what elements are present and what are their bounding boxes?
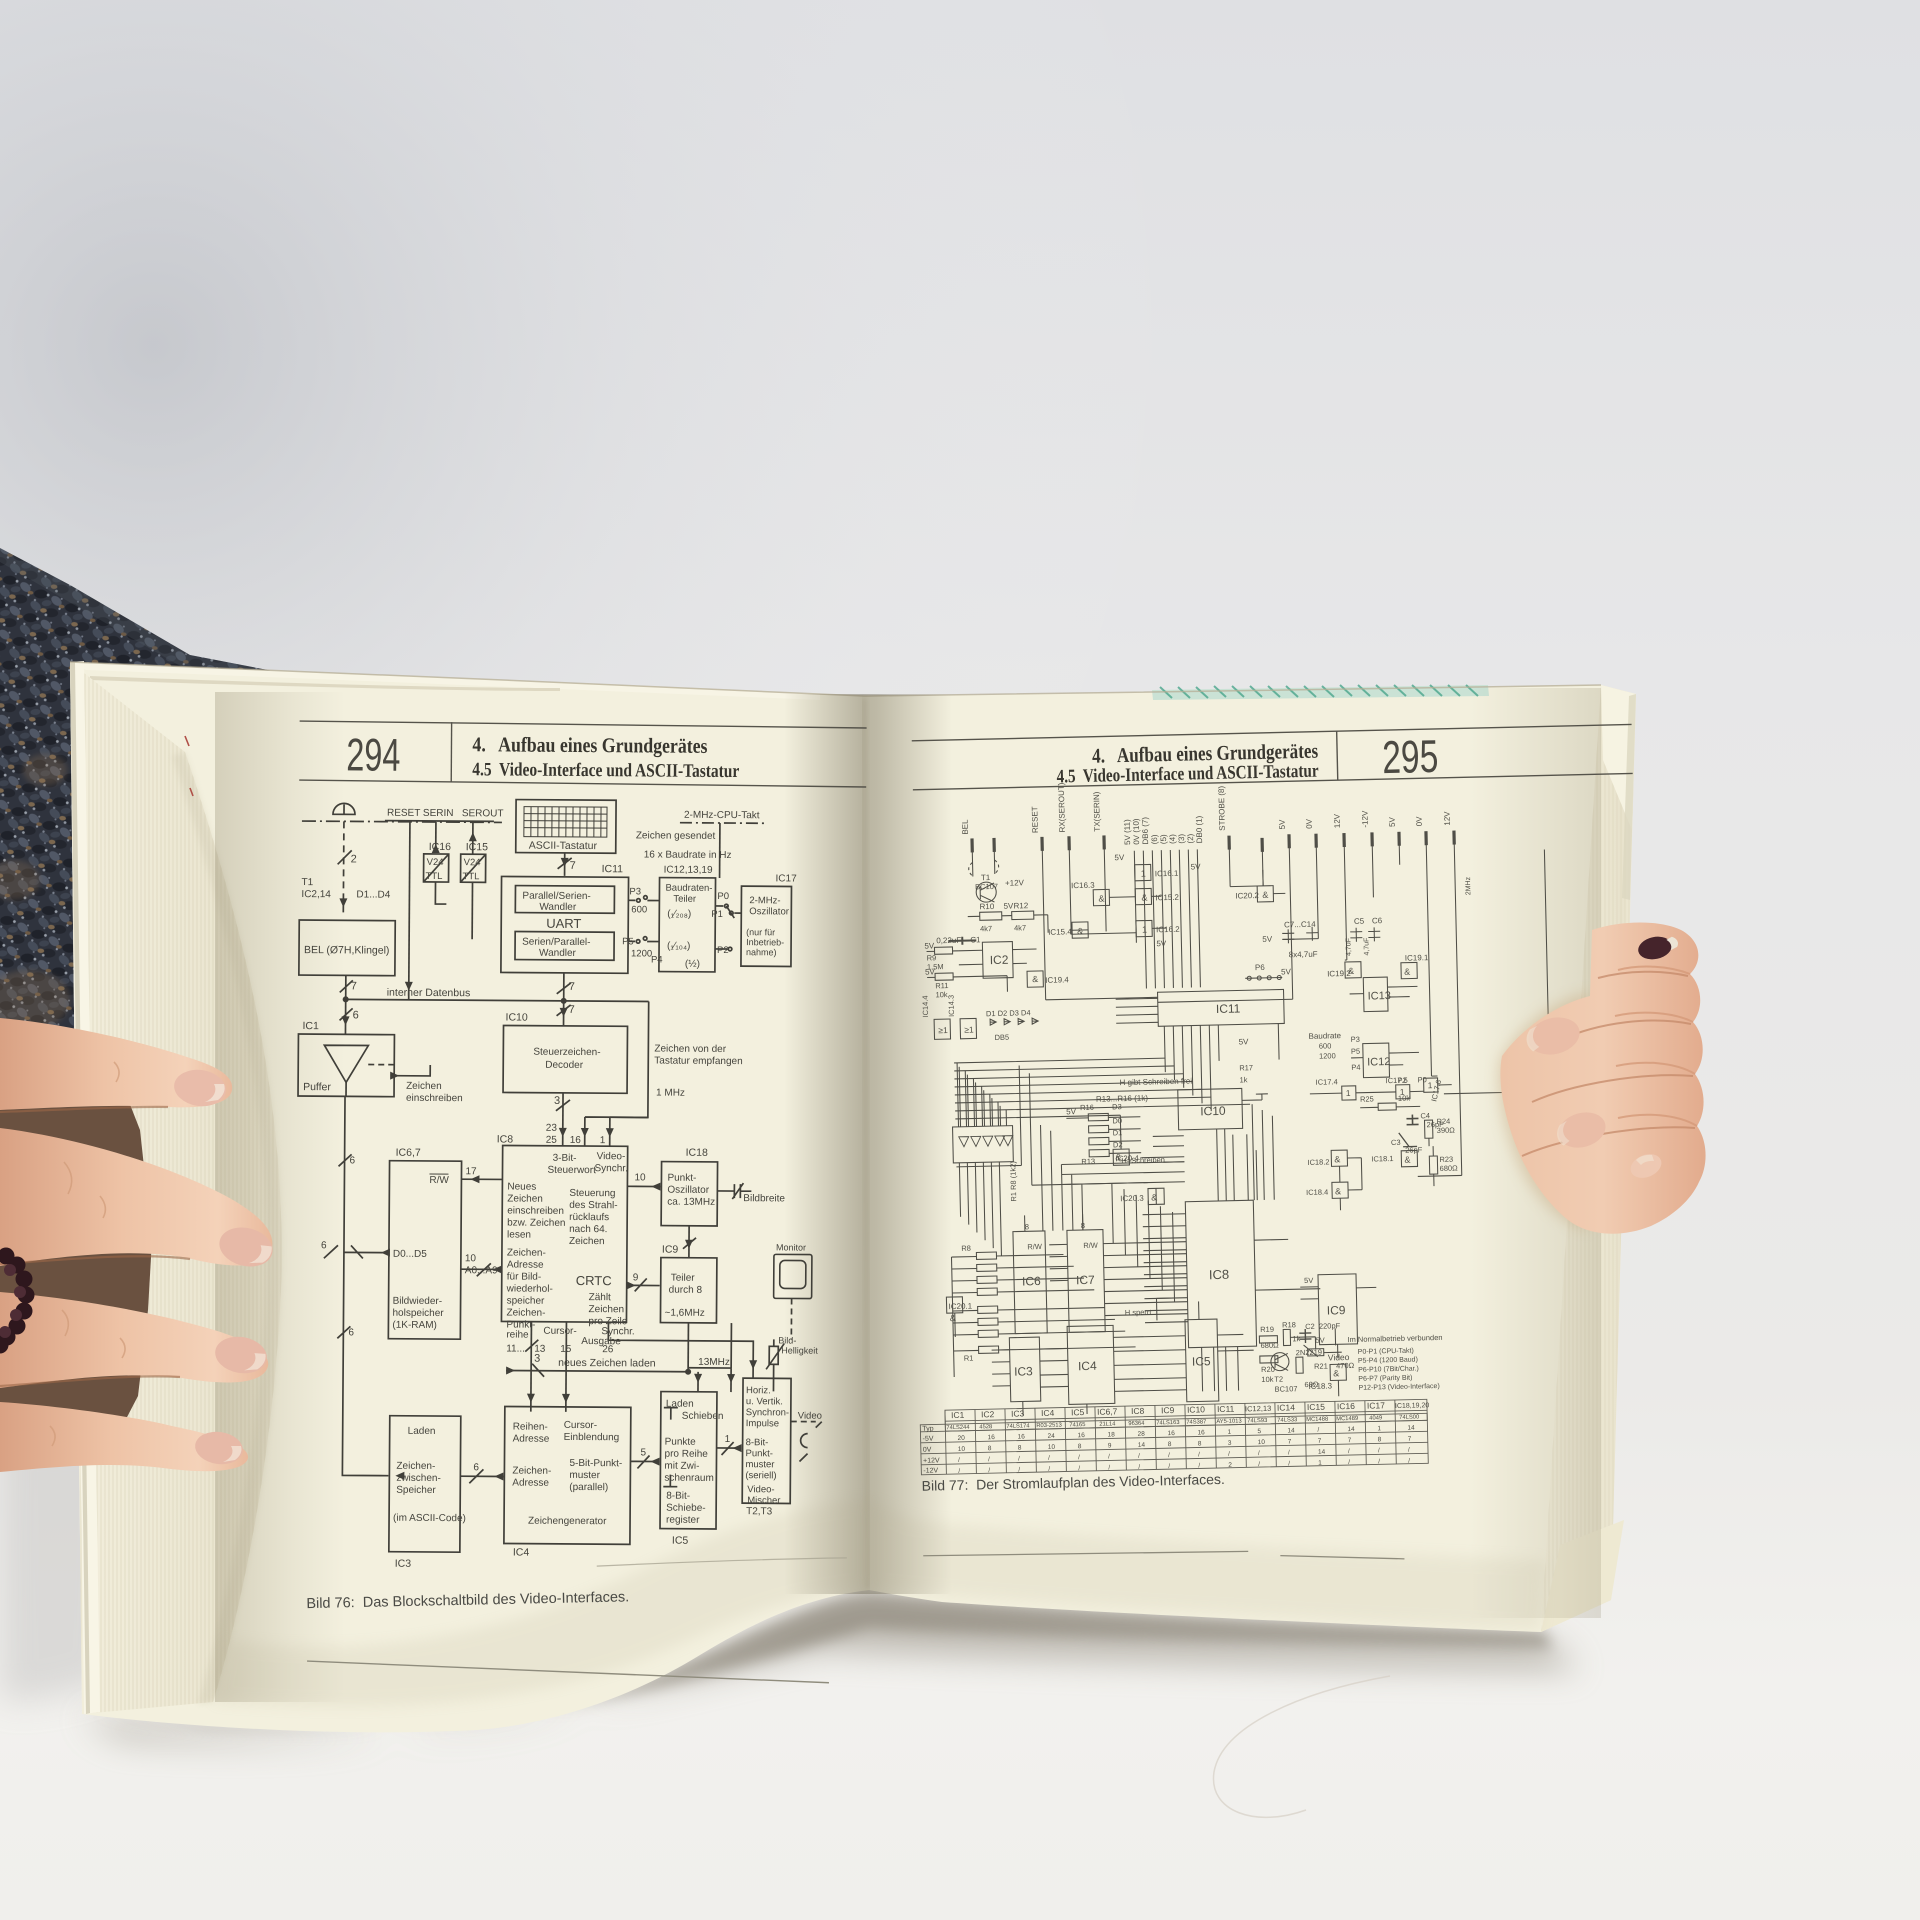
svg-text:Video: Video [798, 1411, 822, 1422]
svg-text:24: 24 [1047, 1433, 1055, 1440]
svg-text:Zählt: Zählt [589, 1292, 612, 1303]
svg-text:1: 1 [600, 1135, 606, 1146]
svg-text:TX(SERIN): TX(SERIN) [1092, 791, 1102, 832]
svg-text:IC10: IC10 [1200, 1104, 1226, 1119]
svg-text:IC5: IC5 [1071, 1407, 1085, 1417]
svg-text:(₁⁄₁₀₄): (₁⁄₁₀₄) [667, 941, 690, 952]
svg-text:/: / [1198, 1462, 1200, 1469]
svg-text:IC11: IC11 [1216, 1001, 1241, 1016]
svg-text:Decoder: Decoder [545, 1060, 584, 1071]
svg-text:74LS00: 74LS00 [1399, 1414, 1419, 1420]
svg-text:D1...D4: D1...D4 [356, 889, 390, 900]
svg-text:74S387: 74S387 [1186, 1419, 1206, 1425]
svg-text:5V: 5V [1239, 1037, 1250, 1046]
svg-text:IC12,13,19: IC12,13,19 [664, 865, 713, 876]
svg-text:C4: C4 [1420, 1111, 1430, 1120]
svg-text:/: / [1168, 1452, 1170, 1459]
svg-text:IC15.4: IC15.4 [1048, 927, 1072, 937]
svg-text:5V: 5V [1156, 939, 1167, 948]
svg-text:0,22uF: 0,22uF [936, 936, 961, 946]
svg-text:R8: R8 [961, 1244, 971, 1253]
svg-text:/: / [988, 1456, 990, 1463]
svg-text:/: / [1378, 1447, 1380, 1454]
svg-text:IC12,13: IC12,13 [1245, 1404, 1271, 1414]
svg-text:Puffer: Puffer [303, 1081, 331, 1093]
svg-text:R03-2513: R03-2513 [1036, 1423, 1062, 1430]
svg-text:Adresse: Adresse [507, 1259, 544, 1270]
svg-text:0V: 0V [1305, 818, 1314, 829]
svg-text:DB6 (7): DB6 (7) [1141, 817, 1151, 845]
svg-text:10k: 10k [1398, 1094, 1411, 1103]
svg-text:/: / [1378, 1458, 1380, 1465]
svg-text:Video-: Video- [597, 1151, 626, 1162]
svg-text:muster: muster [569, 1470, 600, 1481]
svg-text:96364: 96364 [1128, 1421, 1145, 1427]
svg-text:V24: V24 [427, 857, 444, 868]
svg-text:P5: P5 [622, 936, 634, 947]
svg-text:(1K-RAM): (1K-RAM) [392, 1320, 437, 1331]
svg-text:74LS174: 74LS174 [1006, 1423, 1030, 1430]
svg-text:D3: D3 [1112, 1102, 1122, 1111]
svg-text:Laden: Laden [408, 1426, 436, 1437]
svg-text:~1,6MHz: ~1,6MHz [664, 1308, 704, 1319]
svg-text:7: 7 [1318, 1438, 1322, 1445]
svg-text:P2: P2 [717, 945, 729, 956]
svg-text:7: 7 [1348, 1437, 1352, 1444]
svg-text:4049: 4049 [1369, 1415, 1382, 1421]
svg-text:D0: D0 [1112, 1116, 1122, 1125]
svg-text:Zeichengenerator: Zeichengenerator [528, 1516, 607, 1528]
svg-text:&: & [1032, 974, 1038, 984]
svg-text:8-Bit-: 8-Bit- [666, 1491, 690, 1502]
svg-text:R25: R25 [1360, 1094, 1374, 1103]
svg-text:≥1: ≥1 [964, 1024, 974, 1034]
svg-text:7: 7 [1288, 1438, 1292, 1445]
svg-text:T1: T1 [981, 873, 991, 882]
svg-text:/: / [1018, 1456, 1020, 1463]
svg-text:durch 8: durch 8 [669, 1285, 703, 1296]
svg-text:H gibt Schreiben frei: H gibt Schreiben frei [1119, 1077, 1192, 1088]
svg-text:IC20.1: IC20.1 [949, 1302, 973, 1312]
svg-text:P0: P0 [717, 891, 729, 902]
svg-text:IC14: IC14 [1277, 1402, 1295, 1412]
svg-text:IC3: IC3 [1014, 1364, 1033, 1378]
svg-text:P6: P6 [1255, 963, 1266, 972]
svg-text:T2,T3: T2,T3 [746, 1506, 773, 1517]
svg-text:pro Reihe: pro Reihe [664, 1449, 708, 1460]
svg-text:IC17.5: IC17.5 [1385, 1076, 1407, 1085]
svg-text:/: / [958, 1457, 960, 1464]
svg-text:Zeichen-: Zeichen- [506, 1307, 545, 1318]
svg-text:IC1: IC1 [951, 1410, 965, 1420]
svg-text:register: register [666, 1515, 700, 1526]
svg-text:R17: R17 [1239, 1063, 1253, 1072]
svg-text:IC17.4: IC17.4 [1316, 1077, 1338, 1086]
svg-text:Tastatur empfangen: Tastatur empfangen [654, 1056, 742, 1068]
svg-text:H sperrt: H sperrt [1125, 1307, 1153, 1317]
svg-text:für Bild-: für Bild- [507, 1271, 542, 1282]
svg-text:R/W: R/W [429, 1175, 449, 1186]
svg-text:4.5 Video-Interface und ASCII: 4.5 Video-Interface und ASCII-Tastatur [472, 759, 740, 782]
svg-text:5V: 5V [1262, 935, 1273, 944]
svg-text:IC9: IC9 [1327, 1303, 1346, 1317]
svg-text:10k: 10k [1261, 1375, 1274, 1384]
svg-text:R20: R20 [1261, 1365, 1275, 1374]
svg-text:5V: 5V [1114, 853, 1125, 862]
svg-text:5V: 5V [1281, 967, 1292, 976]
svg-text:(6): (6) [1150, 834, 1159, 844]
svg-text:Horiz.: Horiz. [746, 1385, 771, 1396]
svg-text:3: 3 [534, 1353, 540, 1365]
svg-text:7: 7 [569, 981, 575, 993]
svg-text:einschreiben: einschreiben [507, 1205, 564, 1216]
svg-text:IC3: IC3 [395, 1558, 412, 1570]
svg-text:IC6: IC6 [1022, 1274, 1041, 1288]
svg-text:speicher: speicher [507, 1295, 546, 1306]
svg-text:5V: 5V [1388, 816, 1397, 827]
svg-text:5V: 5V [1066, 1107, 1077, 1116]
svg-text:Oszillator: Oszillator [749, 906, 789, 917]
svg-text:/: / [1108, 1453, 1110, 1460]
svg-text:Einblendung: Einblendung [564, 1432, 620, 1443]
svg-text:20: 20 [958, 1435, 966, 1442]
svg-text:Typ: Typ [922, 1425, 934, 1432]
svg-text:IC11: IC11 [602, 863, 624, 875]
svg-text:10: 10 [465, 1253, 477, 1264]
svg-text:7: 7 [1408, 1436, 1412, 1443]
svg-text:Zeichen: Zeichen [588, 1304, 624, 1315]
svg-text:RESET: RESET [1030, 806, 1040, 833]
svg-text:Wandler: Wandler [539, 902, 577, 913]
svg-text:Oszillator: Oszillator [667, 1185, 709, 1196]
svg-text:IC17: IC17 [776, 873, 798, 884]
svg-text:(₁⁄₂₀₈): (₁⁄₂₀₈) [667, 909, 691, 920]
svg-text:10: 10 [958, 1446, 966, 1453]
svg-text:(5): (5) [1159, 834, 1168, 844]
svg-text:Synchron-: Synchron- [746, 1407, 789, 1418]
svg-text:2N2219: 2N2219 [1296, 1348, 1322, 1358]
svg-text:BC107: BC107 [1274, 1384, 1297, 1394]
svg-text:1: 1 [1142, 925, 1147, 935]
svg-text:IC20.4: IC20.4 [1115, 1154, 1139, 1164]
svg-text:Neues: Neues [507, 1181, 536, 1192]
svg-text:IC5: IC5 [672, 1535, 689, 1547]
svg-text:R10: R10 [979, 902, 994, 911]
svg-text:1200: 1200 [1319, 1051, 1336, 1060]
svg-text:5V: 5V [1304, 1276, 1313, 1285]
svg-text:IC4: IC4 [513, 1547, 530, 1559]
svg-text:5: 5 [1257, 1428, 1261, 1435]
svg-text:8: 8 [1078, 1443, 1082, 1450]
svg-text:4k7: 4k7 [980, 924, 992, 933]
svg-text:14: 14 [1138, 1442, 1146, 1449]
svg-text:Helligkeit: Helligkeit [781, 1345, 818, 1355]
svg-text:Zeichen-: Zeichen- [507, 1247, 546, 1258]
svg-text:R13: R13 [1081, 1157, 1095, 1166]
svg-text:RESET SERIN SEROUT: RESET SERIN SEROUT [387, 808, 504, 820]
svg-text:D2: D2 [1113, 1140, 1123, 1149]
svg-text:8x4,7uF: 8x4,7uF [1289, 950, 1318, 960]
svg-text:einschreiben: einschreiben [406, 1093, 463, 1104]
svg-text:5-Bit-Punkt-: 5-Bit-Punkt- [569, 1458, 622, 1469]
svg-text:295: 295 [1382, 730, 1439, 783]
svg-text:P1: P1 [711, 909, 723, 920]
svg-text:IC19.1: IC19.1 [1405, 953, 1429, 963]
svg-text:IC12: IC12 [1367, 1056, 1391, 1069]
svg-text:MC1489: MC1489 [1336, 1416, 1358, 1422]
svg-text:&: & [1404, 967, 1410, 977]
svg-text:Inbetrieb-: Inbetrieb- [746, 937, 784, 947]
svg-text:26pF: 26pF [1405, 1145, 1423, 1154]
svg-text:DB0 (1): DB0 (1) [1195, 815, 1205, 843]
svg-text:4,7uF: 4,7uF [1363, 938, 1370, 956]
svg-text:/: / [1258, 1450, 1260, 1457]
svg-text:IC18.1: IC18.1 [1371, 1154, 1393, 1163]
svg-text:8: 8 [1018, 1444, 1022, 1451]
svg-text:8: 8 [1081, 1221, 1085, 1230]
svg-text:Synchr.: Synchr. [594, 1163, 627, 1174]
svg-text:C5: C5 [1354, 917, 1365, 926]
svg-text:Steuerwort: Steuerwort [547, 1165, 596, 1176]
svg-text:18: 18 [1107, 1431, 1115, 1438]
svg-text:Video: Video [1328, 1352, 1350, 1362]
svg-text:6: 6 [348, 1327, 354, 1338]
svg-text:/: / [1078, 1465, 1080, 1472]
svg-text:IC3: IC3 [1011, 1408, 1025, 1418]
svg-text:1: 1 [1377, 1425, 1381, 1432]
svg-text:IC6,7: IC6,7 [1097, 1406, 1118, 1416]
svg-text:14: 14 [1347, 1426, 1355, 1433]
svg-text:(4): (4) [1168, 834, 1177, 844]
svg-text:9: 9 [1108, 1442, 1112, 1449]
svg-text:P6-P10 (7Bit/Char.): P6-P10 (7Bit/Char.) [1358, 1365, 1419, 1373]
svg-text:R9: R9 [927, 953, 937, 962]
svg-text:&: & [1077, 926, 1083, 936]
svg-text:+12V: +12V [923, 1457, 940, 1464]
svg-text:1k: 1k [1239, 1075, 1247, 1084]
svg-text:IC13: IC13 [1368, 990, 1392, 1003]
svg-text:bzw. Zeichen: bzw. Zeichen [507, 1217, 565, 1228]
svg-text:zwischen-: zwischen- [396, 1473, 441, 1484]
svg-text:Zeichen-: Zeichen- [512, 1466, 551, 1477]
svg-text:-5V: -5V [923, 1435, 934, 1442]
svg-text:294: 294 [346, 728, 400, 780]
svg-text:IC16.3: IC16.3 [1071, 881, 1095, 891]
svg-text:P3: P3 [629, 886, 641, 897]
svg-text:/: / [1408, 1458, 1410, 1465]
svg-text:R/W: R/W [1027, 1242, 1043, 1251]
svg-text:(parallel): (parallel) [569, 1482, 608, 1493]
svg-text:1: 1 [1141, 869, 1146, 879]
svg-text:2-MHz-CPU-Takt: 2-MHz-CPU-Takt [684, 810, 760, 822]
svg-text:lesen: lesen [507, 1229, 531, 1240]
svg-text:IC20.3: IC20.3 [1120, 1194, 1144, 1204]
svg-text:/: / [1258, 1461, 1260, 1468]
svg-text:IC14.4: IC14.4 [921, 995, 930, 1017]
svg-text:Parallel/Serien-: Parallel/Serien- [522, 891, 590, 902]
svg-text:Teiler: Teiler [671, 1273, 696, 1284]
svg-text:25: 25 [546, 1135, 558, 1146]
svg-text:IC14.3: IC14.3 [947, 995, 956, 1017]
svg-text:Impulse: Impulse [746, 1418, 779, 1429]
svg-text:/: / [1048, 1455, 1050, 1462]
svg-text:8: 8 [1025, 1222, 1029, 1231]
svg-text:&: & [1262, 890, 1268, 900]
svg-text:IC15.2: IC15.2 [1155, 893, 1179, 903]
svg-text:74LS163: 74LS163 [1156, 1420, 1179, 1427]
svg-text:16: 16 [1167, 1430, 1175, 1437]
svg-text:7: 7 [570, 860, 576, 872]
svg-text:600: 600 [1319, 1041, 1332, 1050]
svg-text:IC19.4: IC19.4 [1045, 975, 1069, 985]
svg-text:DB5: DB5 [994, 1033, 1009, 1042]
svg-text:/: / [1408, 1447, 1410, 1454]
svg-text:IC10: IC10 [506, 1011, 528, 1023]
svg-text:(3): (3) [1177, 833, 1186, 843]
svg-text:8: 8 [1168, 1441, 1172, 1448]
svg-text:Synchr.: Synchr. [601, 1326, 634, 1337]
svg-text:(½): (½) [685, 959, 700, 970]
svg-text:IC9: IC9 [1161, 1405, 1175, 1415]
svg-text:1: 1 [1227, 1429, 1231, 1436]
svg-text:(nur für: (nur für [746, 927, 775, 937]
svg-text:Schiebe-: Schiebe- [666, 1503, 706, 1514]
svg-text:0V: 0V [1415, 816, 1424, 827]
svg-text:IC15: IC15 [1307, 1402, 1325, 1412]
svg-text:8: 8 [1198, 1440, 1202, 1447]
svg-text:schenraum: schenraum [664, 1473, 714, 1484]
svg-text:nahme): nahme) [746, 947, 777, 957]
svg-text:Bildwieder-: Bildwieder- [393, 1296, 443, 1307]
svg-text:IC8: IC8 [1131, 1406, 1145, 1416]
svg-text:Adresse: Adresse [512, 1478, 549, 1489]
svg-text:Speicher: Speicher [396, 1485, 436, 1496]
svg-text:IC2: IC2 [990, 953, 1009, 967]
svg-text:&: & [1404, 1155, 1410, 1165]
svg-text:Mischer: Mischer [747, 1495, 780, 1506]
svg-text:4,7uF: 4,7uF [1345, 938, 1352, 956]
svg-text:A0...A9: A0...A9 [465, 1265, 498, 1276]
svg-text:Zeichen: Zeichen [569, 1236, 605, 1247]
svg-text:Cursor-: Cursor- [543, 1326, 576, 1337]
svg-text:TTL: TTL [463, 871, 480, 882]
svg-text:14: 14 [1318, 1449, 1326, 1456]
svg-text:Reihen-: Reihen- [513, 1422, 548, 1433]
svg-text:12V: 12V [1442, 811, 1451, 826]
svg-text:IC17: IC17 [1367, 1400, 1385, 1410]
svg-text:IC4: IC4 [1078, 1359, 1097, 1373]
svg-text:neues Zeichen laden: neues Zeichen laden [558, 1357, 656, 1370]
svg-text:interner Datenbus: interner Datenbus [387, 987, 471, 1000]
svg-text:Zeichen: Zeichen [406, 1081, 442, 1092]
svg-text:2-MHz-: 2-MHz- [749, 895, 780, 906]
svg-text:74LS244: 74LS244 [946, 1425, 970, 1432]
svg-text:IC16.2: IC16.2 [1156, 925, 1180, 935]
svg-text:/: / [1348, 1448, 1350, 1455]
svg-text:Baudrate: Baudrate [1308, 1031, 1341, 1041]
svg-text:1200: 1200 [631, 948, 652, 959]
svg-text:8: 8 [988, 1445, 992, 1452]
svg-text:IC15: IC15 [466, 841, 488, 853]
svg-text:Punkte: Punkte [665, 1437, 697, 1448]
svg-text:P4: P4 [1351, 1063, 1360, 1072]
svg-text:IC2,14: IC2,14 [301, 889, 331, 900]
svg-text:IC5: IC5 [1192, 1354, 1211, 1368]
svg-text:Ausgabe: Ausgabe [581, 1336, 621, 1347]
svg-text:1: 1 [1318, 1460, 1322, 1467]
svg-text:P4: P4 [651, 954, 663, 965]
svg-text:(2): (2) [1186, 833, 1195, 843]
svg-text:/: / [1048, 1466, 1050, 1473]
svg-text:D1 D2 D3 D4: D1 D2 D3 D4 [986, 1008, 1031, 1018]
svg-text:7: 7 [569, 1004, 575, 1016]
svg-text:IC10: IC10 [1187, 1404, 1205, 1414]
svg-text:IC4: IC4 [1041, 1408, 1055, 1418]
svg-text:/: / [1018, 1467, 1020, 1474]
svg-text:CRTC: CRTC [576, 1273, 612, 1288]
svg-text:wiederhol-: wiederhol- [506, 1283, 553, 1294]
svg-text:26: 26 [602, 1344, 614, 1355]
svg-text:R1: R1 [964, 1354, 974, 1363]
svg-text:16: 16 [1077, 1432, 1085, 1439]
svg-text:Zeichen von der: Zeichen von der [654, 1044, 726, 1056]
svg-text:Schieben: Schieben [682, 1411, 724, 1422]
svg-text:16 x Baudrate in Hz: 16 x Baudrate in Hz [644, 849, 732, 861]
svg-text:4k7: 4k7 [1014, 923, 1026, 932]
svg-text:P0-P1 (CPU-Takt): P0-P1 (CPU-Takt) [1358, 1348, 1414, 1356]
svg-text:D0...D5: D0...D5 [393, 1249, 427, 1260]
svg-text:/: / [1317, 1427, 1319, 1434]
svg-text:P5-P4 (1200 Baud): P5-P4 (1200 Baud) [1358, 1356, 1418, 1364]
svg-text:R19: R19 [1260, 1325, 1274, 1334]
svg-text:Adresse: Adresse [513, 1434, 550, 1445]
svg-text:1 MHz: 1 MHz [656, 1088, 685, 1099]
svg-text:17: 17 [465, 1166, 477, 1177]
svg-text:14: 14 [1287, 1427, 1295, 1434]
svg-text:holspeicher: holspeicher [392, 1308, 444, 1319]
svg-text:5: 5 [640, 1447, 646, 1458]
svg-text:Bild-: Bild- [778, 1335, 796, 1345]
svg-text:74165: 74165 [1069, 1422, 1085, 1428]
svg-text:+12V: +12V [1005, 878, 1025, 887]
svg-text:6: 6 [350, 1155, 356, 1166]
svg-text:(im ASCII-Code): (im ASCII-Code) [393, 1513, 466, 1525]
svg-text:BEL: BEL [961, 819, 970, 835]
svg-text:TTL: TTL [426, 871, 443, 882]
svg-text:/: / [1108, 1464, 1110, 1471]
svg-text:R18: R18 [1282, 1320, 1296, 1329]
svg-text:6: 6 [353, 1009, 359, 1021]
svg-text:1: 1 [1346, 1088, 1351, 1098]
svg-text:15: 15 [560, 1344, 572, 1355]
svg-text:&: & [1151, 1192, 1157, 1202]
svg-text:BEL (Ø7H,Klingel): BEL (Ø7H,Klingel) [304, 944, 389, 957]
svg-text:/: / [1288, 1449, 1290, 1456]
svg-text:6: 6 [473, 1462, 479, 1473]
svg-text:≥1: ≥1 [938, 1025, 948, 1035]
svg-text:7: 7 [351, 980, 357, 992]
svg-text:Bildbreite: Bildbreite [743, 1193, 785, 1204]
svg-text:/: / [1288, 1460, 1290, 1467]
svg-text:IC9: IC9 [662, 1244, 679, 1256]
svg-text:2: 2 [351, 853, 357, 865]
svg-text:reihe: reihe [506, 1329, 529, 1340]
svg-text:IC1: IC1 [302, 1020, 319, 1032]
svg-text:MC1488: MC1488 [1306, 1417, 1328, 1423]
svg-text:1: 1 [725, 1434, 731, 1445]
svg-text:IC8: IC8 [1209, 1267, 1230, 1282]
svg-text:14: 14 [1407, 1425, 1415, 1432]
